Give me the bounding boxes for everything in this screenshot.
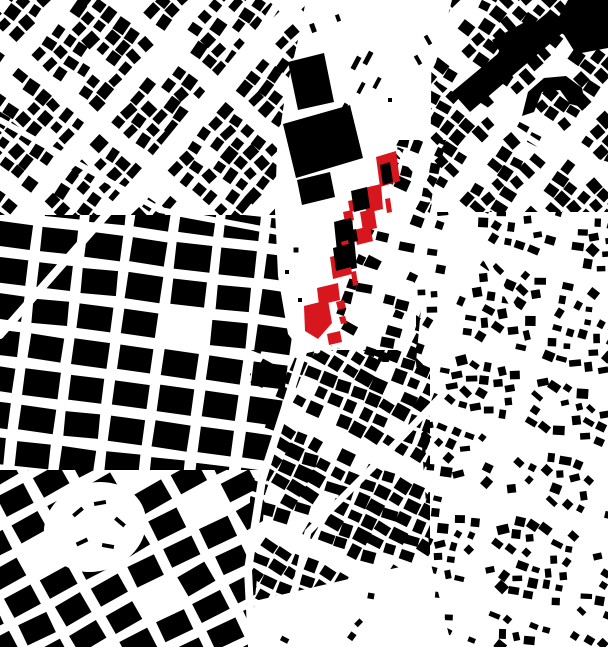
building-footprint xyxy=(499,629,506,639)
building-footprint xyxy=(108,416,145,446)
building-footprint xyxy=(553,425,565,435)
site-building xyxy=(351,187,370,212)
building-footprint xyxy=(602,251,608,257)
building-footprint xyxy=(31,299,69,326)
building-footprint xyxy=(63,411,100,439)
building-footprint xyxy=(76,303,113,332)
building-footprint xyxy=(71,338,110,369)
building-footprint xyxy=(427,464,435,471)
building-footprint xyxy=(507,484,517,493)
building-footprint xyxy=(478,217,488,227)
building-footprint xyxy=(28,333,65,362)
building-footprint xyxy=(527,577,539,589)
building-footprint xyxy=(198,426,234,456)
building-footprint xyxy=(455,515,465,523)
building-footprint xyxy=(594,596,605,607)
building-footprint xyxy=(125,272,164,303)
building-footprint xyxy=(117,345,153,374)
building-footprint xyxy=(563,343,570,349)
platform-dash xyxy=(285,270,289,274)
building-footprint xyxy=(512,576,522,582)
building-footprint xyxy=(581,593,593,599)
building-footprint xyxy=(531,289,541,299)
site-building xyxy=(333,243,355,271)
building-footprint xyxy=(583,258,593,269)
building-footprint xyxy=(121,309,159,338)
building-footprint xyxy=(569,359,582,367)
building-footprint xyxy=(0,221,33,250)
building-footprint xyxy=(507,326,518,335)
building-footprint xyxy=(437,523,449,534)
building-footprint xyxy=(431,291,438,298)
building-footprint xyxy=(460,446,471,452)
building-footprint xyxy=(427,307,438,313)
building-footprint xyxy=(210,320,248,349)
building-footprint xyxy=(15,441,51,469)
platform-dash xyxy=(350,138,354,142)
building-footprint xyxy=(202,390,239,420)
building-footprint xyxy=(584,362,593,372)
building-footprint xyxy=(466,376,478,382)
building-footprint xyxy=(548,338,557,347)
building-footprint xyxy=(558,295,566,304)
building-footprint xyxy=(497,308,508,319)
platform-dash xyxy=(388,98,392,102)
building-footprint xyxy=(580,433,590,440)
building-footprint xyxy=(216,285,251,312)
building-footprint xyxy=(0,256,28,286)
building-footprint xyxy=(588,349,598,356)
building-footprint xyxy=(431,508,440,517)
building-footprint xyxy=(484,407,494,414)
building-footprint xyxy=(486,291,495,301)
platform-dash xyxy=(298,93,302,97)
building-footprint xyxy=(463,328,473,336)
building-footprint xyxy=(417,289,425,295)
building-footprint xyxy=(206,355,243,384)
building-footprint xyxy=(576,388,588,399)
building-footprint xyxy=(550,555,557,563)
building-footprint xyxy=(174,242,213,273)
building-footprint xyxy=(22,368,61,399)
building-footprint xyxy=(559,572,567,580)
building-footprint xyxy=(523,590,534,599)
platform-dash xyxy=(294,248,299,253)
building-footprint xyxy=(426,422,433,429)
building-footprint xyxy=(510,371,520,380)
building-footprint xyxy=(157,385,195,416)
building-footprint xyxy=(593,334,600,344)
building-footprint xyxy=(447,556,455,563)
building-footprint xyxy=(445,614,453,620)
building-footprint xyxy=(161,349,199,380)
map-viewport xyxy=(0,0,608,647)
building-footprint xyxy=(556,470,563,478)
building-footprint xyxy=(526,534,534,542)
building-footprint xyxy=(18,405,56,434)
building-footprint xyxy=(481,318,489,329)
building-footprint xyxy=(479,273,488,282)
building-footprint xyxy=(504,238,512,246)
building-footprint xyxy=(580,491,588,501)
building-footprint xyxy=(152,420,191,452)
building-footprint xyxy=(523,215,531,223)
building-footprint xyxy=(585,306,592,312)
building-footprint xyxy=(534,278,546,285)
building-footprint xyxy=(493,379,503,387)
building-footprint xyxy=(525,316,536,326)
building-footprint xyxy=(472,287,483,298)
building-footprint xyxy=(594,218,601,227)
building-footprint xyxy=(470,518,480,527)
building-footprint xyxy=(545,568,552,578)
building-footprint xyxy=(218,248,256,279)
building-footprint xyxy=(571,242,584,251)
building-footprint xyxy=(504,397,512,405)
building-footprint xyxy=(547,453,555,463)
building-footprint xyxy=(435,264,446,274)
building-footprint xyxy=(555,584,563,591)
building-footprint xyxy=(498,409,506,419)
building-footprint xyxy=(80,268,118,296)
building-footprint xyxy=(367,592,374,599)
building-footprint xyxy=(479,375,489,385)
city-map xyxy=(0,0,608,647)
building-footprint xyxy=(170,278,207,307)
building-footprint xyxy=(434,553,443,560)
building-footprint xyxy=(427,248,438,256)
building-footprint xyxy=(552,598,560,606)
building-footprint xyxy=(523,636,535,646)
building-footprint xyxy=(68,375,104,404)
building-footprint xyxy=(511,529,521,539)
building-footprint xyxy=(572,415,582,425)
building-footprint xyxy=(507,222,515,232)
building-footprint xyxy=(597,266,606,272)
building-footprint xyxy=(112,380,150,409)
building-footprint xyxy=(565,546,573,553)
platform-dash xyxy=(298,298,302,302)
building-footprint xyxy=(440,466,453,477)
building-footprint xyxy=(578,229,588,236)
